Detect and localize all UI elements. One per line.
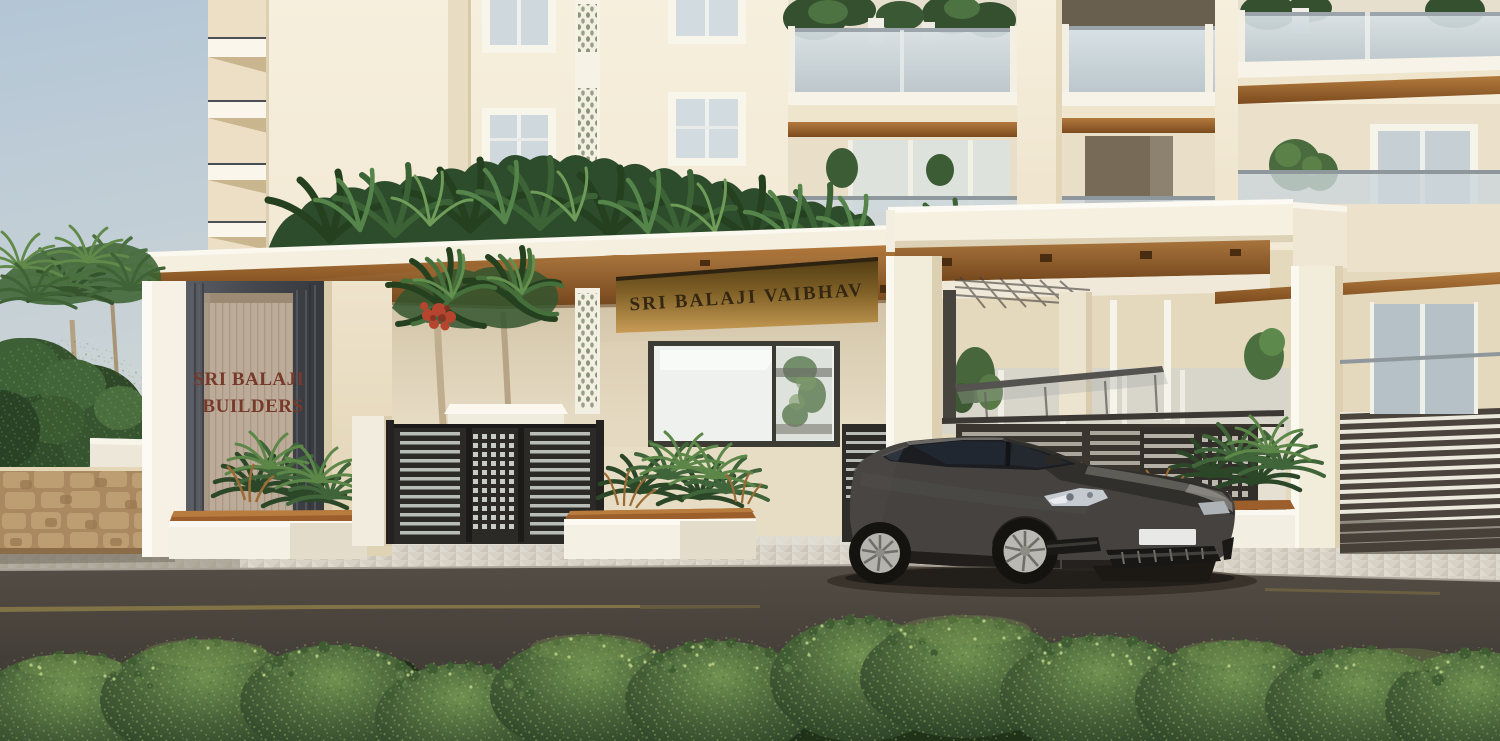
svg-text:SRI BALAJI: SRI BALAJI (193, 369, 304, 390)
svg-text:BUILDERS: BUILDERS (202, 396, 303, 417)
